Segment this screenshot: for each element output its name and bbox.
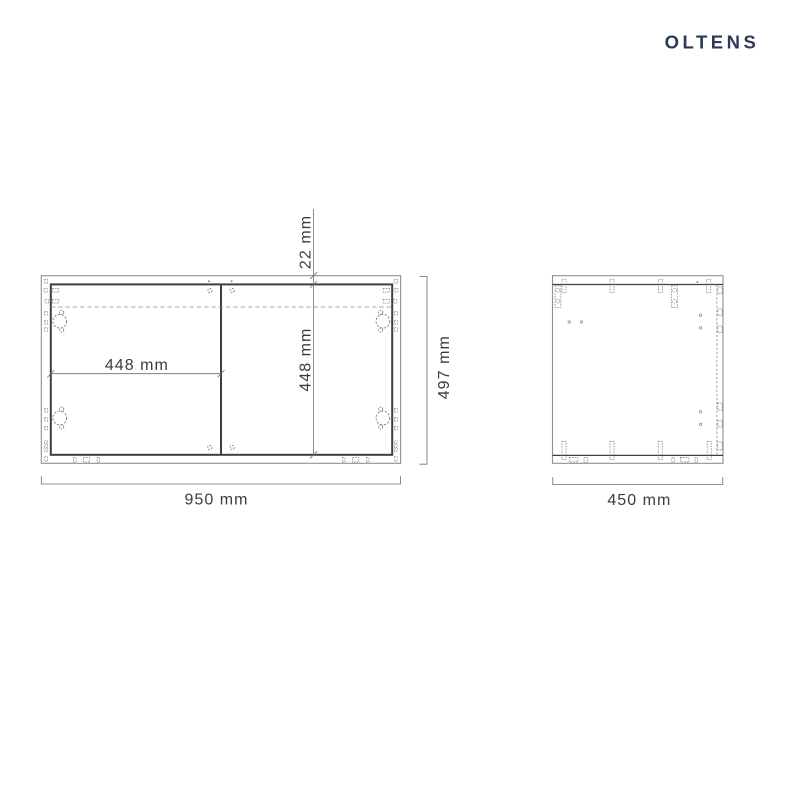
svg-text:OLTENS: OLTENS [665, 32, 760, 53]
svg-text:448 mm: 448 mm [105, 357, 169, 374]
svg-text:497 mm: 497 mm [436, 335, 453, 399]
svg-text:950 mm: 950 mm [184, 492, 248, 509]
svg-text:448 mm: 448 mm [298, 328, 315, 392]
svg-text:22 mm: 22 mm [298, 215, 315, 269]
svg-text:450 mm: 450 mm [607, 492, 671, 509]
